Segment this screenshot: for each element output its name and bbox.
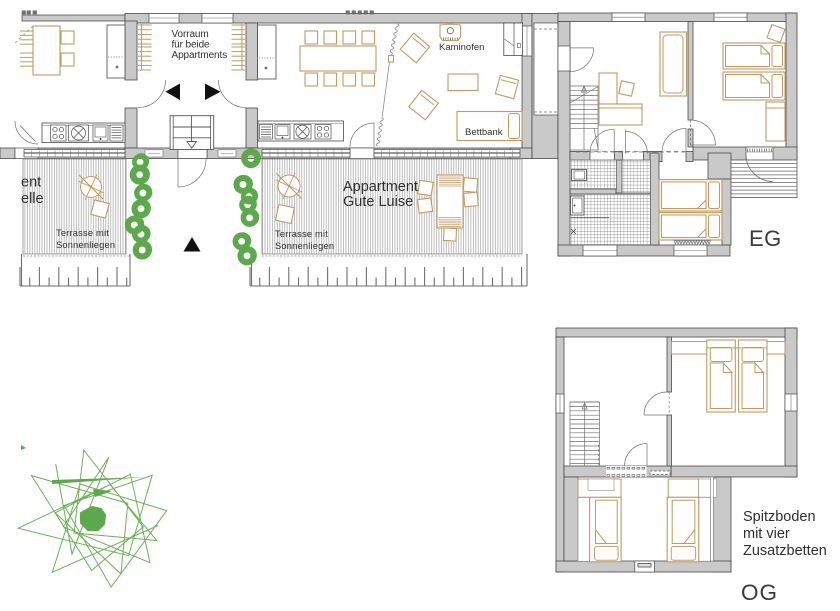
- svg-text:elle: elle: [21, 191, 44, 207]
- svg-text:Terrasse mit: Terrasse mit: [275, 229, 328, 239]
- svg-text:Appartment: Appartment: [343, 179, 418, 195]
- svg-text:für beide: für beide: [172, 40, 211, 51]
- svg-text:Zusatzbetten: Zusatzbetten: [743, 543, 827, 559]
- svg-text:OG: OG: [741, 580, 778, 605]
- svg-text:Spitzboden: Spitzboden: [743, 509, 816, 525]
- svg-text:mit vier: mit vier: [743, 526, 790, 542]
- svg-text:Sonnenliegen: Sonnenliegen: [56, 240, 115, 250]
- svg-text:EG: EG: [749, 226, 782, 251]
- svg-text:ent: ent: [21, 175, 41, 191]
- svg-text:Vorraum: Vorraum: [172, 29, 209, 40]
- svg-text:Terrasse mit: Terrasse mit: [56, 228, 109, 238]
- svg-text:Gute Luise: Gute Luise: [343, 194, 413, 210]
- svg-text:Bettbank: Bettbank: [465, 127, 503, 138]
- svg-text:Kaminofen: Kaminofen: [439, 42, 484, 53]
- svg-text:Appartments: Appartments: [172, 50, 228, 61]
- svg-text:Sonnenliegen: Sonnenliegen: [275, 241, 334, 251]
